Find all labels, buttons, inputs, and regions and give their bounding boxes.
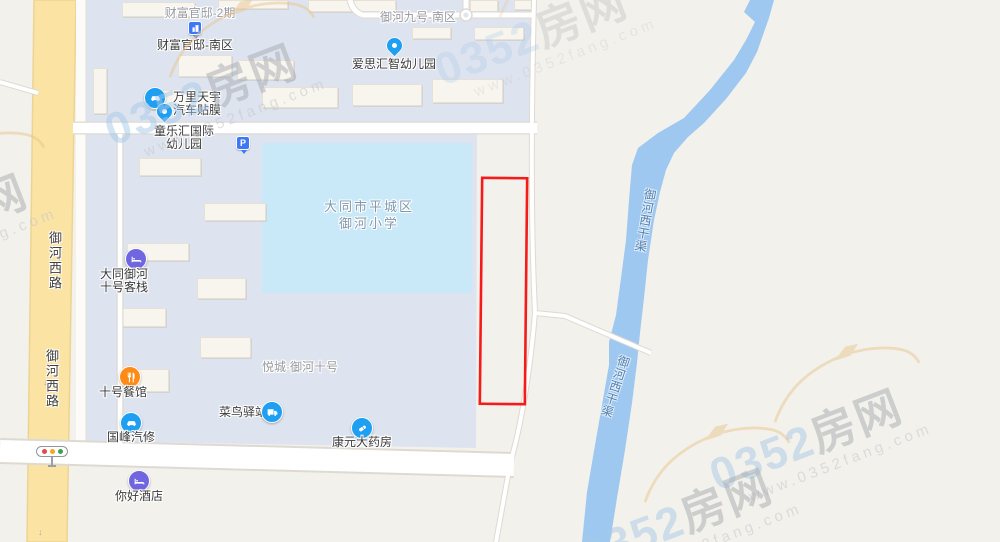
- watermark-number: 0352: [573, 494, 692, 542]
- building: [237, 60, 294, 80]
- one-way-arrow-icon: ↑: [57, 254, 62, 263]
- watermark-car-icon: [748, 317, 935, 430]
- one-way-arrow-icon: ↓: [38, 528, 43, 537]
- watermark-suffix: 房网: [803, 380, 909, 461]
- building: [432, 79, 503, 103]
- poi-label-cainiao-station[interactable]: 菜鸟驿站: [219, 406, 267, 419]
- poi-label-line2[interactable]: 幼儿园: [154, 138, 214, 151]
- poi-label-no10-restaurant[interactable]: 十号餐馆: [99, 386, 147, 399]
- building-icon[interactable]: [188, 21, 202, 35]
- watermark-suffix: 房网: [673, 460, 779, 541]
- river-shape: [582, 0, 774, 542]
- school-label-line1: 大同市平城区: [324, 198, 414, 215]
- building: [139, 158, 201, 176]
- building: [352, 84, 422, 106]
- highlight-plot-outline: [480, 178, 527, 404]
- poi-label-kangyuan-pharmacy[interactable]: 康元大药房: [332, 436, 392, 449]
- building: [470, 0, 498, 12]
- building: [93, 68, 107, 114]
- map-canvas[interactable]: 御河西路 御河西路 ↑ ↓ ↓ 御河西干渠 御河西干渠 财富官邸-2期 御河九号…: [0, 0, 1000, 542]
- area-label-yuecheng-yuhe-no10: 悦城·御河十号: [262, 361, 338, 374]
- poi-label-aisi-huizhi-kindergarten[interactable]: 爱思汇智幼儿园: [352, 58, 436, 71]
- poi-label-wanli-tianyu-car-film[interactable]: 万里天宇 汽车贴膜: [173, 91, 221, 117]
- parking-icon[interactable]: P: [236, 136, 250, 150]
- building: [514, 0, 532, 10]
- building: [262, 87, 338, 108]
- building: [118, 308, 166, 327]
- traffic-light-icon: [36, 446, 68, 467]
- watermark-url: www.0352fang.com: [747, 385, 1000, 506]
- watermark-suffix: 房网: [528, 0, 634, 57]
- river-label-yuhe-west-canal: 御河西干渠: [598, 353, 631, 419]
- watermark-suffix: 房网: [0, 165, 35, 246]
- building: [197, 278, 246, 299]
- poi-label-tonglehui-intl-kindergarten[interactable]: 童乐汇国际 幼儿园: [154, 125, 214, 151]
- one-way-arrow-icon: ↓: [43, 378, 48, 387]
- building: [474, 27, 524, 40]
- building: [412, 27, 451, 39]
- poi-label-caifu-mansion-south[interactable]: 财富官邸-南区: [157, 39, 233, 52]
- building: [178, 55, 232, 77]
- poi-label-line2[interactable]: 汽车贴膜: [173, 104, 221, 117]
- watermark-car-icon: [0, 102, 60, 215]
- building: [200, 337, 251, 358]
- watermark-car-icon: [618, 397, 805, 510]
- poi-label-datong-yuhe-no10-inn[interactable]: 大同御河 十号客栈: [100, 268, 148, 294]
- poi-label-guofeng-auto-repair[interactable]: 国峰汽修: [107, 431, 155, 444]
- building: [204, 203, 266, 221]
- watermark-number: 0352: [703, 414, 822, 500]
- area-label-caifu-mansion-phase2: 财富官邸-2期: [165, 7, 236, 20]
- poi-label-nihao-hotel[interactable]: 你好酒店: [115, 490, 163, 503]
- watermark: 0352房网 www.0352fang.com: [685, 292, 1000, 516]
- area-label-yuhe-no9-south: 御河九号-南区: [380, 11, 456, 24]
- school-label: 大同市平城区 御河小学: [324, 198, 414, 232]
- river-label-yuhe-west-canal: 御河西干渠: [632, 187, 657, 253]
- school-label-line2: 御河小学: [324, 215, 414, 232]
- watermark-url: www.0352fang.com: [617, 465, 896, 542]
- poi-label-line2[interactable]: 十号客栈: [100, 281, 148, 294]
- truck-icon[interactable]: [261, 401, 283, 423]
